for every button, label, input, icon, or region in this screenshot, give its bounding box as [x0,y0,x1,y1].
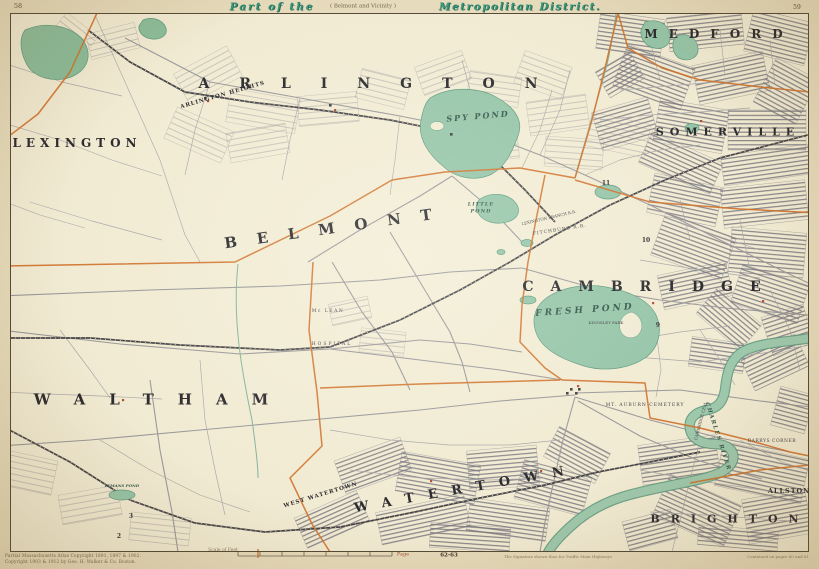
urban-blocks [429,522,511,553]
building-block [578,388,581,391]
footer-page-ref: 62-63 [440,553,458,559]
map-title-main: Metropolitan District. [439,2,601,13]
label-little-pond-line2: POND [470,210,491,215]
label-lymans-pond: LYMANS POND [105,484,140,488]
building-block [575,392,578,395]
district-number: 3 [129,514,133,520]
label-brighton: BRIGHTON [650,514,809,525]
district-number: 9 [656,323,660,329]
label-mt-auburn-cemetery: MT. AUBURN CEMETERY [606,404,685,409]
label-lexington: LEXINGTON [12,137,141,149]
building-block [329,104,332,107]
landmark-dot [652,302,654,304]
landmark-dot [762,300,764,302]
lymans-pond [109,490,135,500]
pond [497,250,505,255]
urban-blocks [129,512,192,546]
label-little-pond-line1: LITTLE [468,203,494,208]
landmark-dot [577,385,579,387]
landmark-dot [700,120,702,122]
district-number: 10 [642,238,650,244]
label-kingsley-park: KINGSLEY PARK [589,321,624,325]
urban-blocks [544,136,604,170]
building-block [450,133,453,136]
footer-note-right: Continued on pages 60 and 61 [747,555,809,559]
label-cambridge: CAMBRIDGE [522,280,777,294]
building-block [570,388,573,391]
label-barrys-corner: BARRYS CORNER [748,440,796,445]
scale-label: Scale of Feet [208,549,238,554]
landmark-dot [334,109,336,111]
building-block [566,392,569,395]
label-allston: ALLSTON [768,488,810,495]
map-title-part: Part of the [230,2,315,13]
urban-blocks [728,227,807,278]
atlas-map-page: 58 Part of the ( Belmont and Vicinity ) … [0,0,819,569]
landmark-dot [430,480,432,482]
district-number: 2 [117,534,121,540]
page-number-left: 58 [14,3,22,10]
copyright-line-2: Copyright 1903 & 1912 by Geo. H. Walker … [5,559,136,564]
spy-pond-island [430,122,444,131]
label-mclean-line1: Mc LEAN [312,310,345,315]
page-number-right: 59 [793,5,801,11]
footer-page-label: Page [397,553,409,558]
map-title-subtitle: ( Belmont and Vicinity ) [330,4,396,10]
label-somerville: SOMERVILLE [656,127,800,138]
footer-note-center: The Signature shown thus for Traffic Mai… [504,555,612,559]
label-mclean-line2: HOSPITAL [312,343,353,348]
copyright-line-1: Partial Massachusetts Atlas Copyright 18… [5,553,141,558]
district-number: 11 [602,181,610,187]
label-medford: MEDFORD [644,28,793,40]
label-waltham: WALTHAM [34,393,292,408]
